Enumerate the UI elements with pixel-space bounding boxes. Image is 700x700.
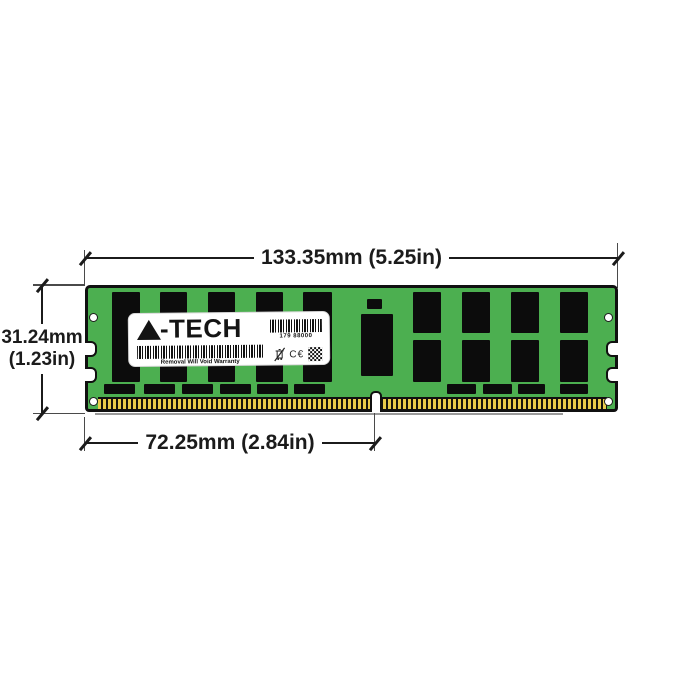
height-dimension-mm: 31.24mm (1, 327, 82, 349)
memory-module: -TECH 179 88000 Removal Will Void Warran… (85, 285, 618, 412)
dimension-line (85, 442, 138, 444)
gold-pins (98, 397, 607, 409)
memory-chip (462, 340, 490, 382)
a-tech-triangle-icon (137, 320, 161, 340)
warranty-barcode-icon (137, 345, 263, 359)
screw-hole (89, 397, 98, 406)
pin-span-dimension-label: 72.25mm (2.84in) (138, 431, 321, 455)
memory-chip (511, 340, 539, 382)
memory-chip (483, 384, 512, 394)
warranty-text: Removal Will Void Warranty (137, 359, 263, 366)
edge-notch (85, 341, 97, 357)
memory-chip (257, 384, 288, 394)
product-diagram: 133.35mm (5.25in) 31.24mm (1.23in) -TECH (0, 0, 700, 700)
memory-chip (220, 384, 251, 394)
memory-chip (511, 292, 539, 333)
pin-span-dimension: 72.25mm (2.84in) (85, 430, 375, 456)
memory-chip (182, 384, 213, 394)
weee-bin-icon (274, 347, 285, 361)
memory-chip (560, 384, 588, 394)
edge-notch (606, 341, 618, 357)
pin-notch (370, 391, 382, 412)
memory-chip (104, 384, 135, 394)
warranty-block: Removal Will Void Warranty (137, 345, 263, 366)
memory-chip (447, 384, 476, 394)
dimension-line (85, 257, 254, 259)
height-dimension: 31.24mm (1.23in) (2, 285, 82, 413)
serial-barcode-icon (270, 319, 322, 333)
memory-chip (560, 292, 588, 333)
width-dimension-label: 133.35mm (5.25in) (254, 246, 449, 270)
brand-logo: -TECH (137, 318, 242, 340)
memory-chip (294, 384, 325, 394)
dimension-line (322, 442, 375, 444)
memory-chip (560, 340, 588, 382)
serial-number: 179 88000 (270, 333, 322, 340)
serial-block: 179 88000 (270, 319, 322, 340)
memory-chip (144, 384, 175, 394)
width-dimension: 133.35mm (5.25in) (85, 245, 618, 271)
height-dimension-in: (1.23in) (1, 349, 82, 371)
ce-mark: C€ (289, 349, 304, 360)
screw-hole (89, 313, 98, 322)
dimension-line (41, 374, 43, 413)
edge-notch (606, 367, 618, 383)
edge-notch (85, 367, 97, 383)
memory-chip (413, 340, 441, 382)
dimension-line (449, 257, 618, 259)
memory-chip (413, 292, 441, 333)
dimension-line (41, 285, 43, 324)
memory-chip (361, 314, 393, 376)
certification-symbols: C€ (274, 347, 322, 361)
qr-code-icon (308, 347, 322, 361)
product-label: -TECH 179 88000 Removal Will Void Warran… (128, 311, 331, 367)
memory-chip (367, 299, 382, 309)
module-shadow (95, 413, 563, 415)
screw-hole (604, 397, 613, 406)
memory-chip (462, 292, 490, 333)
brand-text: -TECH (160, 318, 242, 340)
height-dimension-label: 31.24mm (1.23in) (1, 324, 82, 375)
memory-chip (518, 384, 545, 394)
screw-hole (604, 313, 613, 322)
